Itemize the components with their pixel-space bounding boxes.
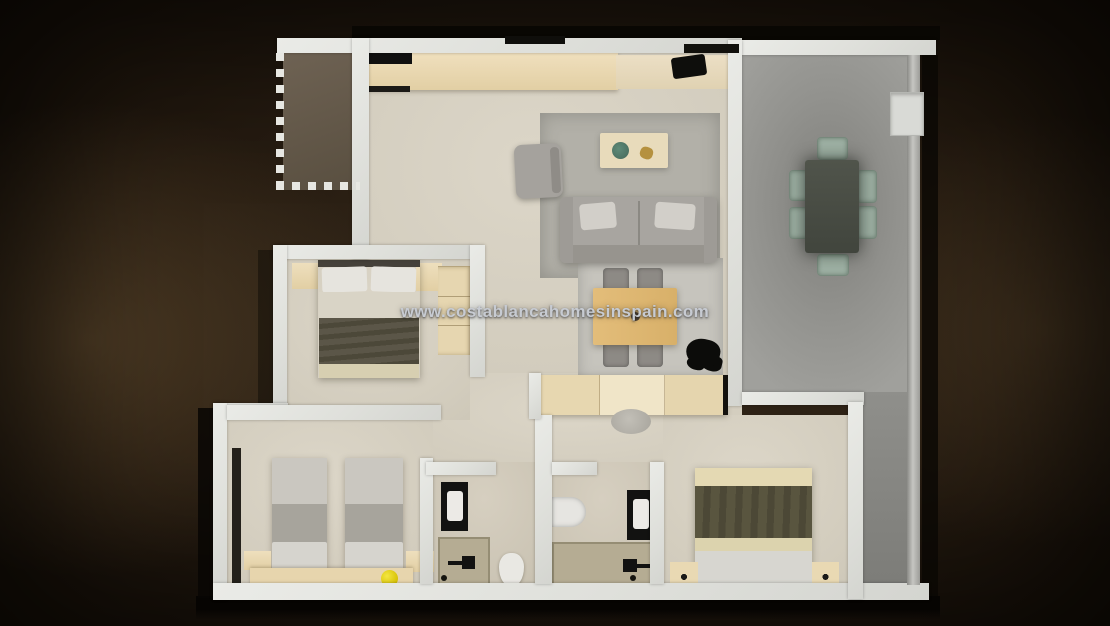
headboard bbox=[318, 260, 420, 267]
bed-single-2 bbox=[345, 458, 403, 572]
wall-bedroom3-left bbox=[650, 462, 664, 584]
bed-double-3 bbox=[695, 468, 812, 588]
ac-unit bbox=[890, 92, 924, 136]
bed-blanket bbox=[695, 486, 812, 540]
outdoor-chair bbox=[857, 170, 877, 203]
sofa-arm-right bbox=[704, 197, 717, 263]
floor-plan-render: www.costablancahomesinspain.com bbox=[0, 0, 1110, 626]
outdoor-table bbox=[805, 160, 859, 253]
bed-band bbox=[695, 538, 812, 551]
watermark-text: www.costablancahomesinspain.com bbox=[0, 302, 1110, 322]
wardrobe-section bbox=[665, 375, 727, 415]
wall-terrace-corner bbox=[742, 392, 864, 405]
wall-bedroom1-top bbox=[273, 245, 471, 259]
bed-blanket bbox=[319, 318, 419, 366]
window-strip bbox=[684, 44, 739, 53]
sofa-seat-split bbox=[638, 201, 640, 245]
wall-bedroom3-terrace bbox=[848, 402, 863, 599]
drain-dot bbox=[441, 575, 447, 581]
sofa-arm-left bbox=[560, 197, 573, 263]
wall-bathrooms-divider bbox=[535, 415, 552, 584]
dining-chair bbox=[637, 342, 663, 367]
coffee-table bbox=[600, 133, 668, 168]
shower-arm bbox=[637, 564, 651, 568]
wardrobe-divider bbox=[438, 325, 472, 326]
outdoor-chair bbox=[817, 254, 849, 276]
wall-living-terrace bbox=[728, 40, 742, 406]
drain-dot bbox=[630, 575, 636, 581]
shower-fixture bbox=[623, 559, 637, 572]
sofa bbox=[560, 197, 717, 263]
sofa-pillow-left bbox=[579, 201, 617, 230]
shadow-right bbox=[922, 55, 938, 596]
outdoor-chair bbox=[857, 206, 877, 239]
wall-bedroom2-left bbox=[213, 403, 227, 599]
bed-top bbox=[345, 458, 403, 506]
window-strip bbox=[505, 36, 565, 44]
outdoor-chair bbox=[817, 137, 848, 160]
wall-bedroom-divider bbox=[227, 405, 441, 420]
shower-fixture bbox=[462, 556, 475, 569]
bed-band bbox=[345, 504, 403, 544]
balcony-floor bbox=[283, 53, 353, 190]
shower-1 bbox=[438, 537, 490, 585]
armchair bbox=[514, 143, 564, 199]
wardrobe-divider bbox=[438, 296, 472, 297]
bed-band bbox=[272, 504, 327, 544]
vanity-1 bbox=[441, 482, 468, 531]
dining-chair bbox=[603, 342, 629, 367]
table-decor bbox=[638, 145, 654, 161]
balcony-dashed-edge-bottom bbox=[276, 182, 360, 190]
wall-bathroom1-left bbox=[420, 458, 433, 584]
wall-bedroom1-left bbox=[273, 245, 287, 418]
counter-shadow-line bbox=[369, 86, 410, 92]
wall-hall-cap bbox=[529, 373, 541, 419]
pillow bbox=[322, 266, 368, 293]
sofa-backrest bbox=[573, 245, 704, 263]
wall-bathroom1-top bbox=[426, 462, 496, 475]
wall-bathroom2-top bbox=[552, 462, 597, 475]
armchair-arm bbox=[550, 147, 561, 193]
bed-single-1 bbox=[272, 458, 327, 572]
wardrobe-section bbox=[537, 375, 600, 415]
bed-top bbox=[272, 458, 327, 506]
shadow-left bbox=[198, 408, 213, 598]
pillow bbox=[371, 266, 417, 293]
terrace-floor-south bbox=[862, 392, 910, 588]
wardrobe-strip-dark bbox=[232, 448, 241, 585]
stove-appliance bbox=[369, 52, 412, 64]
pouf bbox=[611, 409, 651, 434]
bed-top-band bbox=[695, 468, 812, 488]
vanity-basin bbox=[447, 491, 463, 521]
nightstand bbox=[292, 263, 318, 289]
bed-foot bbox=[319, 364, 419, 378]
bathtub bbox=[552, 497, 586, 527]
wall-bottom bbox=[213, 583, 929, 600]
wall-balcony-right bbox=[352, 38, 369, 259]
wall-top-terrace bbox=[742, 40, 936, 55]
balcony-dashed-edge-left bbox=[276, 53, 284, 190]
shadow-left-upper bbox=[258, 250, 273, 405]
vanity-basin bbox=[633, 499, 649, 529]
sofa-pillow-right bbox=[654, 202, 696, 231]
shower-arm bbox=[448, 561, 462, 565]
green-plate bbox=[612, 142, 629, 159]
shower-2 bbox=[552, 542, 653, 585]
